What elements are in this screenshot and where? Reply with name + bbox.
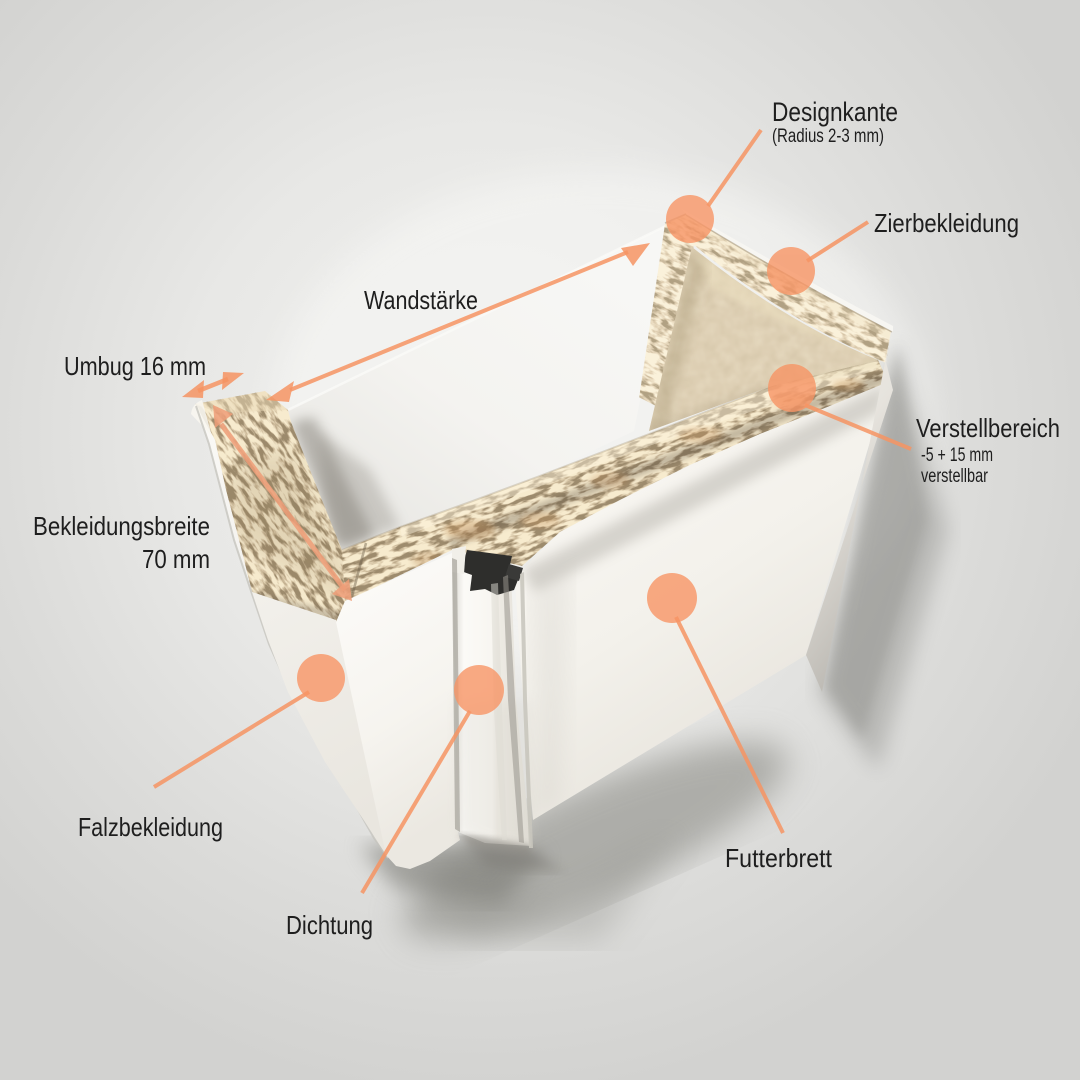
svg-text:Dichtung: Dichtung xyxy=(286,910,373,940)
svg-text:Verstellbereich: Verstellbereich xyxy=(916,413,1060,443)
svg-text:Zierbekleidung: Zierbekleidung xyxy=(874,208,1019,238)
svg-text:Futterbrett: Futterbrett xyxy=(725,843,833,873)
svg-text:Umbug 16 mm: Umbug 16 mm xyxy=(64,351,206,381)
svg-text:(Radius 2-3 mm): (Radius 2-3 mm) xyxy=(772,126,884,147)
svg-text:Wandstärke: Wandstärke xyxy=(364,285,478,315)
svg-text:70 mm: 70 mm xyxy=(142,544,210,574)
svg-text:Falzbekleidung: Falzbekleidung xyxy=(78,812,223,842)
svg-text:Designkante: Designkante xyxy=(772,97,898,127)
svg-text:-5 + 15 mm: -5 + 15 mm xyxy=(921,445,993,466)
svg-text:Bekleidungsbreite: Bekleidungsbreite xyxy=(33,511,210,541)
svg-text:verstellbar: verstellbar xyxy=(921,466,989,487)
